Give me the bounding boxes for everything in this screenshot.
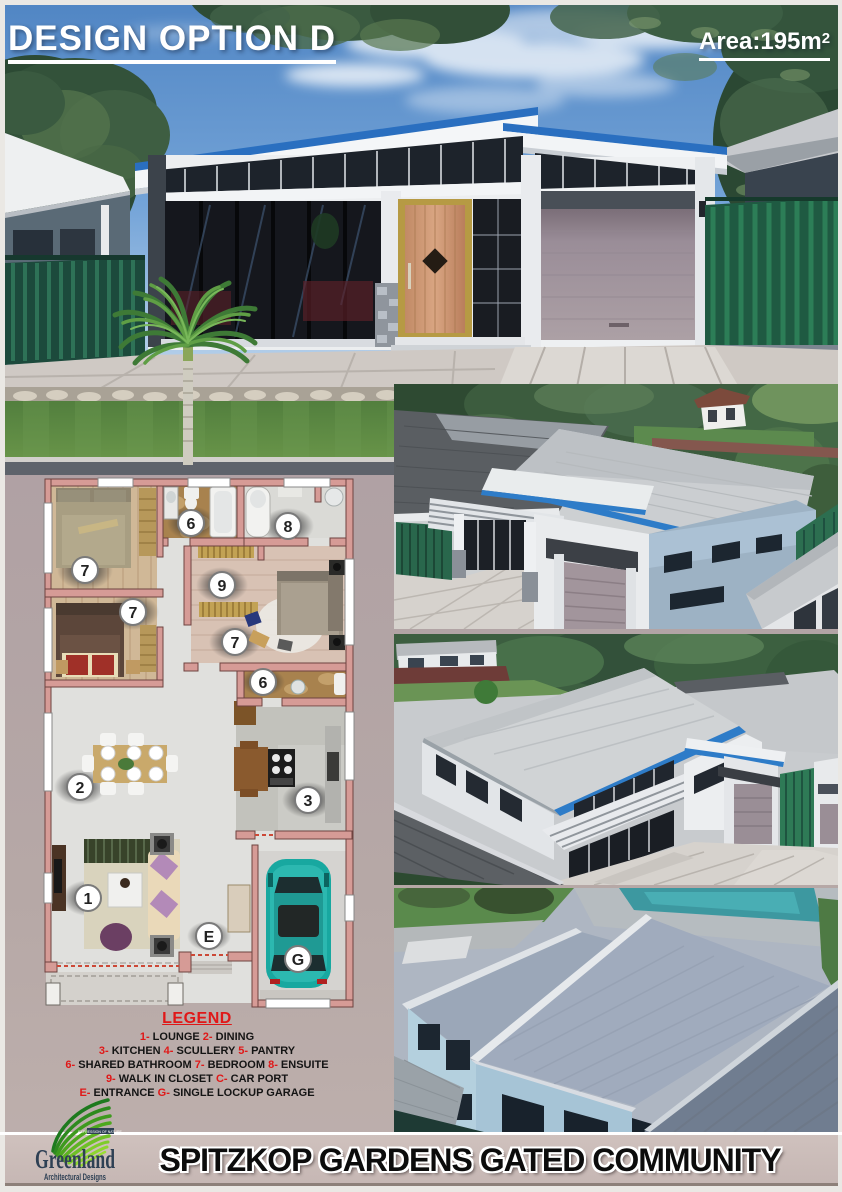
svg-text:8: 8 <box>284 519 293 536</box>
svg-text:1: 1 <box>84 891 93 908</box>
svg-text:7: 7 <box>129 605 138 622</box>
svg-text:Greenland: Greenland <box>35 1144 115 1174</box>
svg-text:6: 6 <box>187 516 196 533</box>
svg-text:3: 3 <box>304 793 313 810</box>
svg-text:EXPRESSION OF NATURE: EXPRESSION OF NATURE <box>78 1130 122 1134</box>
svg-text:E: E <box>204 929 215 946</box>
svg-text:7: 7 <box>81 563 90 580</box>
svg-text:9: 9 <box>218 578 227 595</box>
svg-text:G: G <box>292 952 304 969</box>
svg-text:Architectural Designs: Architectural Designs <box>44 1172 106 1182</box>
svg-text:7: 7 <box>231 635 240 652</box>
svg-text:2: 2 <box>76 780 85 797</box>
svg-text:6: 6 <box>259 675 268 692</box>
